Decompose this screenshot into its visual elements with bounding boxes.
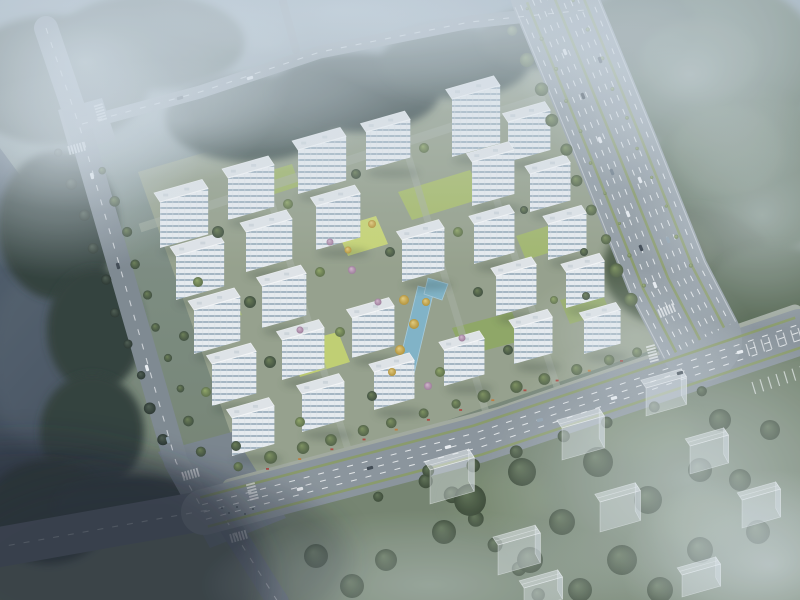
aerial-render-stage (0, 0, 800, 600)
atmosphere-mist (0, 0, 800, 600)
aerial-architectural-render (0, 0, 800, 600)
